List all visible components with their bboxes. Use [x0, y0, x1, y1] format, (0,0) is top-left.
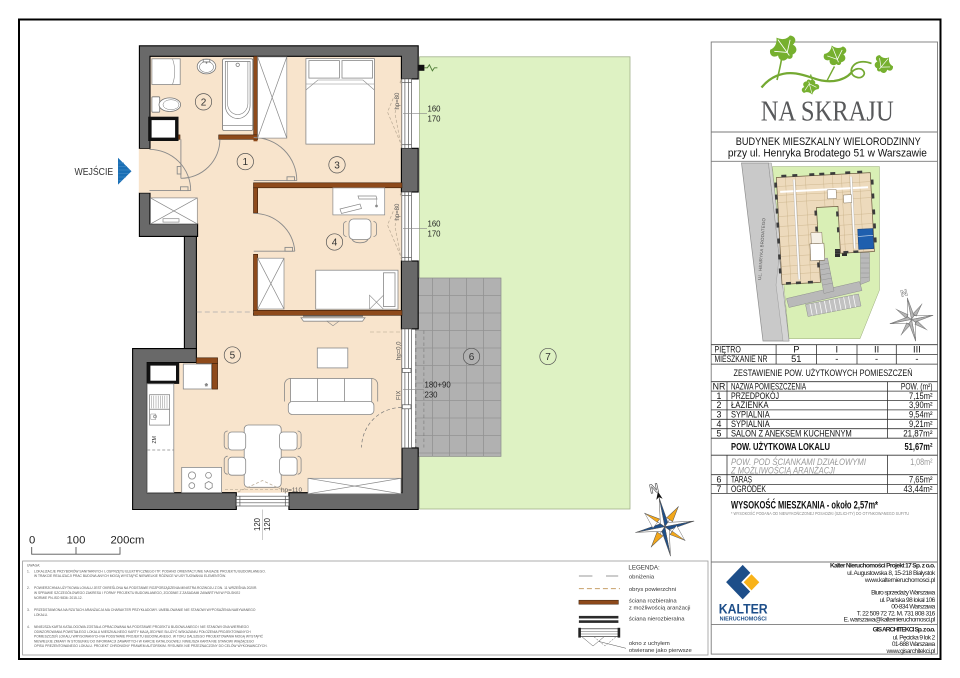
svg-text:Kalter Nieruchomości Projekt 1: Kalter Nieruchomości Projekt 17 Sp. z o.… [830, 563, 935, 570]
svg-text:FIX: FIX [396, 391, 402, 400]
svg-text:5: 5 [717, 428, 722, 438]
svg-text:ściana nierozbieralna: ściana nierozbieralna [629, 617, 685, 623]
svg-text:5: 5 [230, 351, 236, 362]
svg-text:160: 160 [428, 104, 442, 113]
svg-text:7: 7 [717, 484, 722, 494]
svg-text:POW. UŻYTKOWA LOKALU: POW. UŻYTKOWA LOKALU [731, 442, 830, 453]
svg-text:170: 170 [428, 114, 442, 123]
svg-text:z możliwością aranżacji: z możliwością aranżacji [629, 605, 691, 611]
svg-text:WEJŚCIE: WEJŚCIE [75, 165, 114, 178]
svg-text:51: 51 [791, 354, 801, 364]
svg-text:180+90: 180+90 [425, 380, 452, 389]
svg-text:NIEWIELKIE ZMIANY W STOSUNKU D: NIEWIELKIE ZMIANY W STOSUNKU DO INFORMAC… [34, 638, 254, 643]
svg-text:*: * [205, 384, 208, 391]
svg-text:100: 100 [67, 535, 86, 547]
svg-text:160: 160 [428, 220, 442, 229]
svg-text:7: 7 [545, 352, 551, 363]
svg-text:hp=80: hp=80 [395, 92, 401, 110]
svg-text:ZESTAWIENIE POW. UŻYTKOWYCH PO: ZESTAWIENIE POW. UŻYTKOWYCH POMIESZCZEŃ [734, 368, 913, 378]
svg-text:1.: 1. [27, 569, 30, 573]
svg-text:POMIESZCZEŃ LOKALU WRYSOWANYCH: POMIESZCZEŃ LOKALU WRYSOWANYCH NA PODSTA… [34, 634, 264, 639]
svg-text:2.: 2. [27, 586, 30, 590]
svg-text:MIESZKANIE NR: MIESZKANIE NR [715, 354, 768, 364]
svg-text:6: 6 [469, 352, 475, 363]
svg-text:P: P [793, 345, 799, 355]
svg-text:1: 1 [243, 157, 249, 168]
svg-text:PIĘTRO: PIĘTRO [715, 345, 741, 355]
svg-text:www.gisarchitekci.pl: www.gisarchitekci.pl [886, 648, 936, 655]
svg-text:120: 120 [263, 517, 272, 531]
svg-text:I: I [836, 345, 839, 355]
svg-text:NINIEJSZA KARTA KATALOGOWA ZOS: NINIEJSZA KARTA KATALOGOWA ZOSTAŁA OPRAC… [34, 625, 249, 629]
svg-text:POWIERZCHNIA UŻYTKOWA LOKALU J: POWIERZCHNIA UŻYTKOWA LOKALU JEST OKREŚL… [34, 585, 257, 590]
svg-text:51,67m²: 51,67m² [905, 442, 934, 453]
svg-text:E. warszawa@kalternieruchomosc: E. warszawa@kalternieruchomosci.pl [844, 617, 936, 624]
svg-text:UWAGA:: UWAGA: [27, 564, 40, 568]
svg-text:III: III [913, 345, 921, 355]
svg-text:OGRÓDEK: OGRÓDEK [731, 484, 766, 494]
svg-text:KALTER: KALTER [719, 601, 768, 617]
svg-text:SALON Z ANEKSEM KUCHENNYM: SALON Z ANEKSEM KUCHENNYM [731, 428, 852, 438]
svg-text:otwierane jako pierwsze: otwierane jako pierwsze [629, 648, 693, 654]
svg-text:00-834 Warszawa: 00-834 Warszawa [891, 603, 935, 610]
svg-text:-: - [835, 354, 838, 364]
svg-text:GIS ARCHITEKCI Sp. z o.o.: GIS ARCHITEKCI Sp. z o.o. [873, 627, 936, 634]
svg-text:BUDYNEK MIESZKALNY WIELORODZIN: BUDYNEK MIESZKALNY WIELORODZINNY [736, 136, 922, 148]
svg-text:ściana rozbieralna: ściana rozbieralna [629, 598, 678, 604]
svg-text:obrys powierzchni: obrys powierzchni [629, 587, 676, 593]
svg-text:170: 170 [428, 230, 442, 239]
svg-text:www.kalternieruchomosci.pl: www.kalternieruchomosci.pl [864, 577, 936, 584]
svg-text:3.: 3. [27, 608, 30, 612]
svg-text:-: - [875, 354, 878, 364]
svg-text:0: 0 [29, 535, 35, 547]
svg-text:-: - [915, 354, 918, 364]
svg-text:II: II [874, 345, 879, 355]
svg-text:43,44m²: 43,44m² [904, 484, 933, 494]
svg-text:przy ul. Henryka Brodatego 51: przy ul. Henryka Brodatego 51 w Warszawi… [728, 148, 927, 160]
svg-text:OPISU PREZENTOWANEGO LOKALU. P: OPISU PREZENTOWANEGO LOKALU. PROJEKT CHR… [34, 643, 267, 648]
svg-text:4: 4 [332, 238, 338, 249]
svg-text:* WYSOKOŚĆ PODANA OD NIEWYKOŃC: * WYSOKOŚĆ PODANA OD NIEWYKOŃCZONEJ POSA… [731, 509, 909, 516]
svg-text:ul. Augustowska 8, 15-218 Biał: ul. Augustowska 8, 15-218 Białystok [847, 570, 936, 577]
svg-text:PRZEDSTAWIONA NA RZUTACH ARANŻ: PRZEDSTAWIONA NA RZUTACH ARANŻACJA MA CH… [34, 607, 256, 612]
svg-text:Biuro sprzedaży Warszawa: Biuro sprzedaży Warszawa [871, 590, 936, 597]
svg-text:120: 120 [253, 517, 262, 531]
svg-text:3: 3 [334, 160, 340, 171]
svg-text:WYSOKOŚĆ MIESZKANIA - około 2,: WYSOKOŚĆ MIESZKANIA - około 2,57m* [731, 498, 879, 511]
svg-text:21,87m²: 21,87m² [903, 428, 932, 438]
svg-text:W TRAKCIE REALIZACJI PRAC BUDO: W TRAKCIE REALIZACJI PRAC BUDOWLANYCH MO… [34, 573, 226, 578]
svg-text:obniżenia: obniżenia [629, 574, 655, 580]
svg-text:NORMIE PN-ISO 9836: 2015-12.: NORMIE PN-ISO 9836: 2015-12. [34, 596, 83, 600]
svg-text:230: 230 [425, 390, 439, 399]
svg-text:LEGENDA:: LEGENDA: [628, 565, 660, 572]
svg-text:hp=0,0: hp=0,0 [396, 341, 402, 360]
svg-text:ZM: ZM [152, 436, 158, 444]
svg-text:4.: 4. [27, 625, 30, 629]
svg-text:NA SKRAJU: NA SKRAJU [761, 96, 894, 127]
svg-text:NIERUCHOMOŚCI: NIERUCHOMOŚCI [720, 615, 768, 622]
svg-text:okno z uchyłem: okno z uchyłem [629, 641, 670, 647]
svg-text:hp=80: hp=80 [395, 203, 401, 221]
svg-text:LOKALIZACJE PRZYBORÓW SANITARN: LOKALIZACJE PRZYBORÓW SANITARNYCH I, OSP… [34, 568, 266, 573]
svg-text:2: 2 [201, 97, 207, 108]
svg-text:LOKALU.: LOKALU. [34, 613, 48, 617]
svg-text:W SPRAWIE SZCZEGÓŁOWEGO ZAKRES: W SPRAWIE SZCZEGÓŁOWEGO ZAKRESU I FORMY … [34, 590, 241, 595]
svg-text:200cm: 200cm [111, 535, 145, 547]
svg-text:1,08m²: 1,08m² [910, 457, 932, 467]
svg-text:ODWZOROWANIA POWSTAŁEGO LOKALU: ODWZOROWANIA POWSTAŁEGO LOKALU MIESZKALN… [34, 629, 251, 634]
